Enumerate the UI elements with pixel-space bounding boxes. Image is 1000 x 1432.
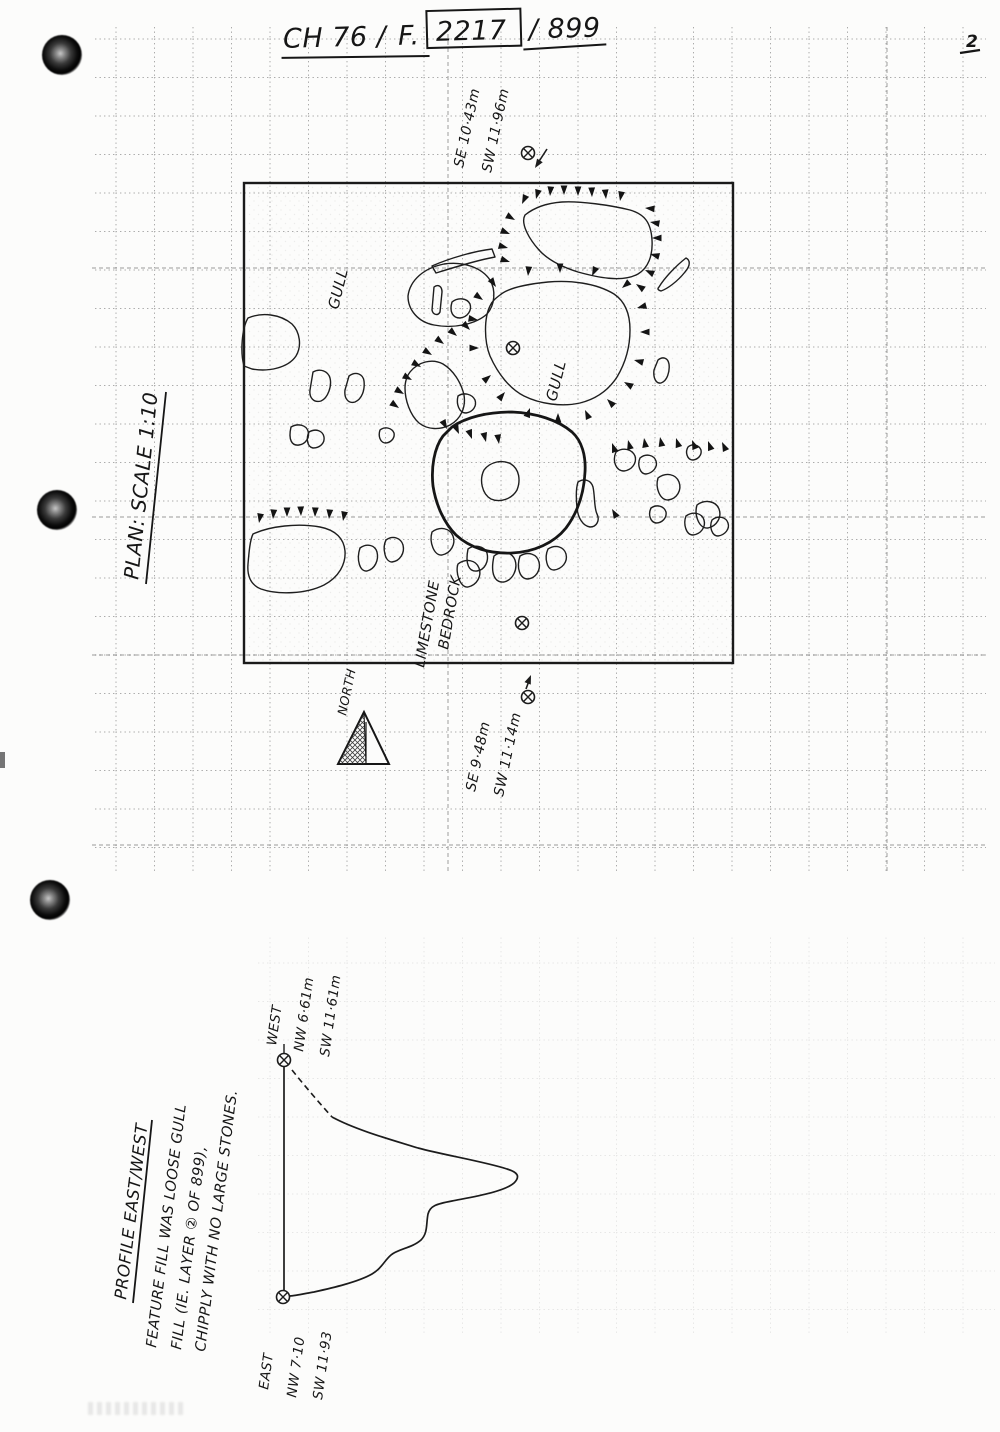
site-code: CH 76 / xyxy=(283,21,389,55)
east-point-line1: NW 7·10 xyxy=(284,1336,308,1399)
east-point-line2: SW 11·93 xyxy=(310,1330,335,1400)
page-number: 2 xyxy=(966,32,978,52)
drawing-canvas: CH 76 / F. 2217 / 899 2 xyxy=(0,0,1000,1432)
feature-number: 2217 xyxy=(436,15,508,48)
level-point-icon xyxy=(522,691,535,704)
context-number: / 899 xyxy=(526,13,601,46)
grid-lower-faint xyxy=(255,935,995,1335)
level-point-icon xyxy=(277,1291,290,1304)
hole-punch-top xyxy=(42,35,82,75)
level-point-icon xyxy=(278,1054,291,1067)
scanned-record-sheet: CH 76 / F. 2217 / 899 2 xyxy=(0,0,1000,1432)
faint-print-artifact xyxy=(88,1402,184,1415)
east-point-label: EAST xyxy=(256,1351,277,1391)
feature-label: F. xyxy=(398,20,420,52)
hole-punch-middle xyxy=(37,490,77,530)
level-point-icon xyxy=(522,147,535,160)
scan-edge-artifact xyxy=(0,752,5,768)
hole-punch-bottom xyxy=(30,880,70,920)
level-point-icon xyxy=(507,342,520,355)
level-point-icon xyxy=(516,617,529,630)
profile-heading: PROFILE EAST/WEST xyxy=(111,1121,152,1301)
